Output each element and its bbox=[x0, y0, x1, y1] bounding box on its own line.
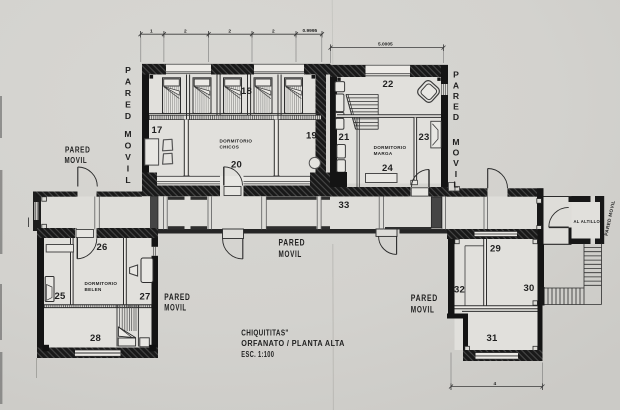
svg-text:4: 4 bbox=[494, 381, 497, 387]
svg-text:A: A bbox=[453, 80, 459, 90]
svg-text:PARED: PARED bbox=[411, 293, 438, 304]
svg-text:O: O bbox=[125, 141, 132, 151]
svg-text:1: 1 bbox=[150, 29, 153, 35]
svg-text:M: M bbox=[124, 129, 131, 139]
svg-text:MOVIL: MOVIL bbox=[164, 302, 187, 313]
svg-text:21: 21 bbox=[339, 132, 350, 143]
svg-text:2: 2 bbox=[272, 29, 275, 35]
svg-text:5.0005: 5.0005 bbox=[378, 42, 393, 48]
svg-text:CHICOS: CHICOS bbox=[220, 145, 240, 150]
svg-text:MARGA: MARGA bbox=[374, 151, 393, 156]
svg-text:A: A bbox=[125, 77, 131, 87]
svg-text:DORMITORIO: DORMITORIO bbox=[85, 281, 118, 286]
svg-text:26: 26 bbox=[97, 242, 108, 253]
svg-text:19: 19 bbox=[306, 130, 317, 141]
svg-text:MOVIL: MOVIL bbox=[279, 249, 303, 260]
svg-text:DORMITORIO: DORMITORIO bbox=[220, 139, 253, 144]
svg-text:P: P bbox=[125, 65, 131, 75]
svg-text:2: 2 bbox=[184, 29, 187, 35]
svg-text:L: L bbox=[453, 179, 458, 189]
svg-text:ESC. 1:100: ESC. 1:100 bbox=[241, 349, 274, 359]
svg-text:20: 20 bbox=[231, 159, 242, 170]
svg-text:I: I bbox=[455, 169, 457, 179]
svg-text:17: 17 bbox=[152, 125, 163, 136]
svg-text:0.9995: 0.9995 bbox=[303, 28, 318, 34]
svg-text:24: 24 bbox=[382, 163, 393, 174]
svg-text:33: 33 bbox=[339, 200, 350, 211]
svg-text:E: E bbox=[125, 100, 131, 110]
svg-text:30: 30 bbox=[524, 283, 535, 294]
svg-text:D: D bbox=[453, 112, 459, 122]
svg-text:O: O bbox=[453, 148, 460, 158]
svg-text:R: R bbox=[453, 91, 460, 101]
svg-text:31: 31 bbox=[487, 333, 498, 344]
svg-text:P: P bbox=[453, 70, 459, 80]
svg-text:28: 28 bbox=[90, 333, 101, 344]
svg-text:PARED: PARED bbox=[279, 238, 306, 249]
svg-text:E: E bbox=[453, 102, 459, 112]
svg-text:23: 23 bbox=[419, 132, 430, 143]
svg-text:M: M bbox=[452, 137, 459, 147]
svg-text:32: 32 bbox=[454, 285, 465, 296]
svg-text:AL ALTILLO: AL ALTILLO bbox=[574, 219, 601, 224]
svg-text:MOVIL: MOVIL bbox=[411, 305, 435, 316]
svg-text:25: 25 bbox=[55, 291, 66, 302]
svg-text:D: D bbox=[125, 111, 131, 121]
svg-text:I: I bbox=[127, 164, 129, 174]
svg-text:18: 18 bbox=[241, 86, 252, 97]
svg-text:V: V bbox=[125, 152, 131, 162]
svg-text:PARED: PARED bbox=[65, 146, 91, 155]
svg-text:27: 27 bbox=[140, 292, 151, 303]
svg-text:22: 22 bbox=[383, 79, 394, 90]
svg-text:BELEN: BELEN bbox=[85, 287, 102, 292]
svg-text:V: V bbox=[453, 158, 459, 168]
svg-text:DORMITORIO: DORMITORIO bbox=[374, 145, 407, 150]
svg-text:MOVIL: MOVIL bbox=[65, 156, 88, 165]
svg-text:29: 29 bbox=[490, 243, 501, 254]
svg-text:CHIQUITITAS": CHIQUITITAS" bbox=[241, 327, 288, 337]
svg-text:2: 2 bbox=[228, 29, 231, 35]
svg-text:R: R bbox=[125, 88, 132, 98]
svg-text:L: L bbox=[125, 175, 130, 185]
svg-text:ORFANATO / PLANTA ALTA: ORFANATO / PLANTA ALTA bbox=[241, 338, 344, 348]
